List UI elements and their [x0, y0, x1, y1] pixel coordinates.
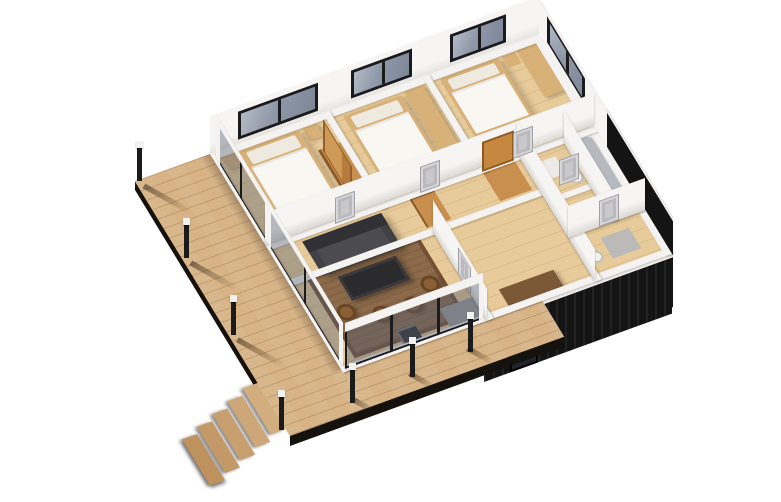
glazing-post — [265, 195, 271, 249]
deck-post — [350, 369, 355, 403]
deck-post — [279, 396, 284, 430]
glazing-post — [216, 114, 220, 165]
floor-plan-render — [0, 0, 781, 502]
deck-post — [410, 343, 415, 377]
deck-post — [184, 224, 189, 258]
deck-post — [231, 301, 236, 335]
glazing-post — [339, 316, 343, 367]
glazing-mullion — [437, 297, 440, 335]
deck-post — [137, 147, 142, 181]
glazing-mullion — [240, 161, 242, 200]
glazing-post — [479, 273, 483, 320]
glazing-mullion — [390, 315, 393, 353]
deck-post — [468, 318, 473, 352]
glazing-mullion — [304, 267, 306, 306]
